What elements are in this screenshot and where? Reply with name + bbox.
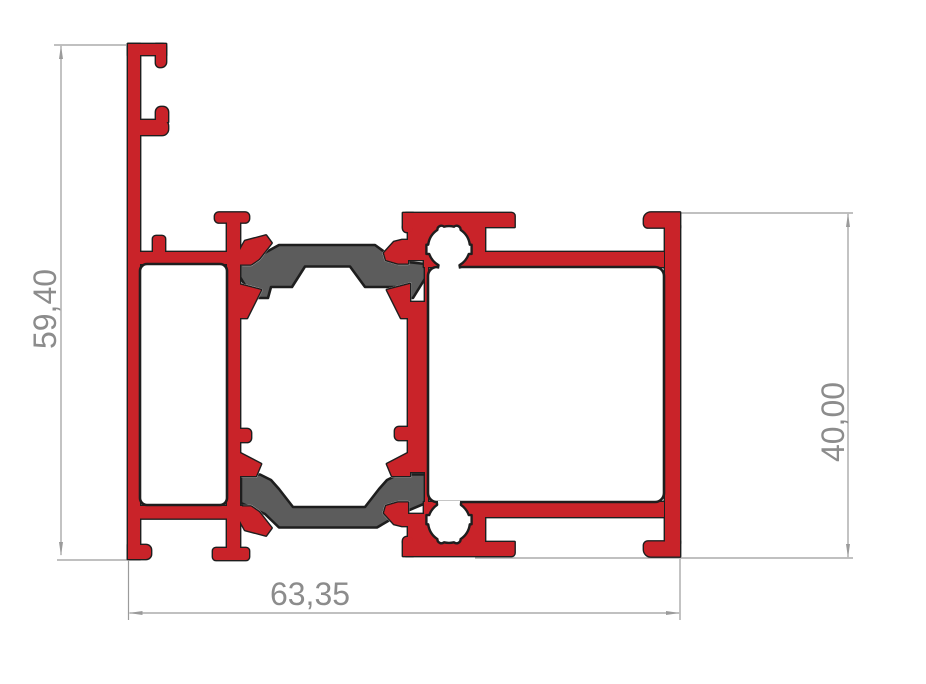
svg-text:59,40: 59,40: [27, 269, 63, 349]
svg-text:40,00: 40,00: [815, 382, 851, 462]
svg-text:63,35: 63,35: [270, 576, 350, 612]
